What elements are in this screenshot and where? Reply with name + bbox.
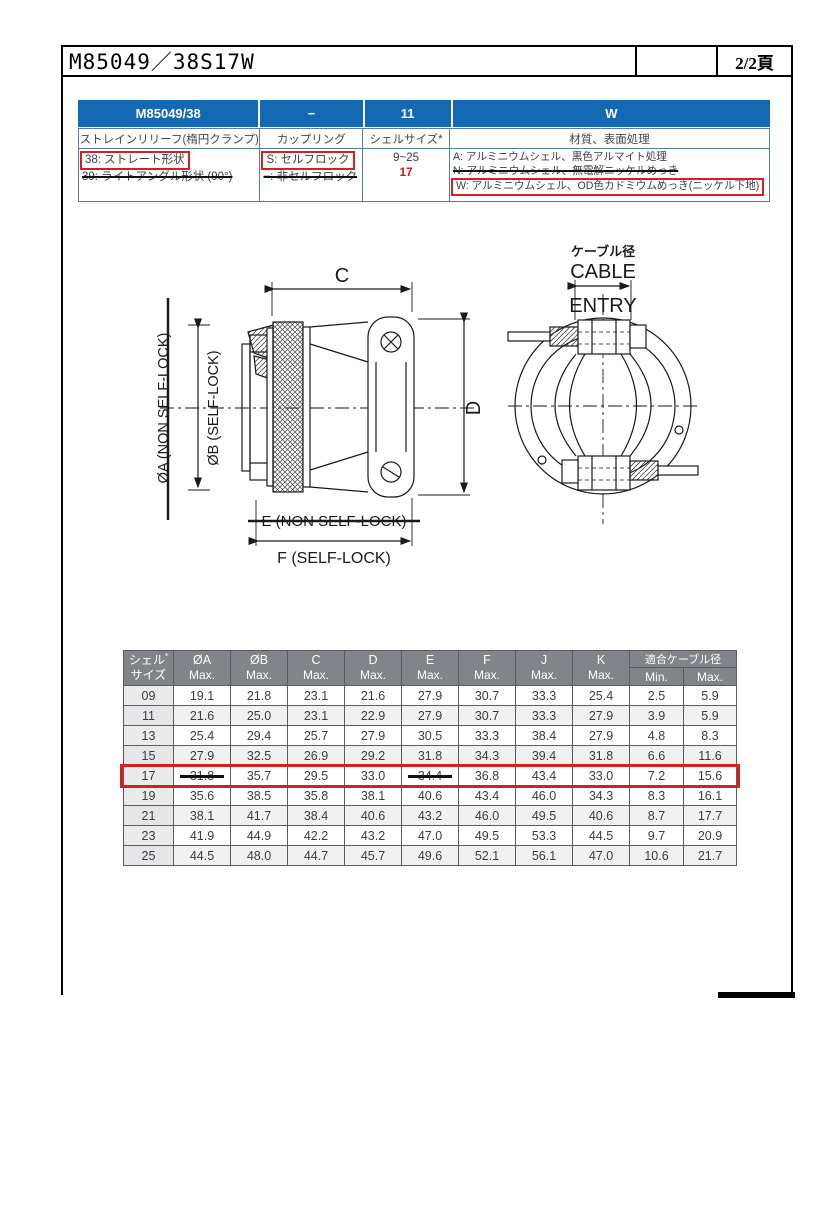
dim-value-cell: 31.8 xyxy=(573,746,630,766)
dim-value-cell: 22.9 xyxy=(345,706,402,726)
dim-value-cell: 30.7 xyxy=(459,706,516,726)
dim-value-cell: 25.0 xyxy=(231,706,288,726)
selector-option: N: アルミニウムシェル、無電解ニッケルめっき xyxy=(453,165,766,179)
dim-value-cell: 40.6 xyxy=(402,786,459,806)
selector-option-text: 9~25 xyxy=(393,151,419,166)
dim-value-cell: 27.9 xyxy=(573,706,630,726)
shell-size-value: 23 xyxy=(124,826,174,846)
selector-option: W: アルミニウムシェル、OD色カドミウムめっき(ニッケル下地) xyxy=(453,178,766,196)
selector-label-1: カップリング xyxy=(260,129,363,149)
selector-option: 39: ライトアングル形状 (90°) xyxy=(82,170,256,185)
dim-value-cell: 35.8 xyxy=(288,786,345,806)
dim-value-cell: 4.8 xyxy=(630,726,684,746)
dim-symbol: C xyxy=(311,653,320,668)
dim-symbol: ØA xyxy=(193,653,211,668)
dim-value-cell: 38.1 xyxy=(345,786,402,806)
table-row: 0919.121.823.121.627.930.733.325.42.55.9 xyxy=(124,686,737,706)
dim-value-cell: 15.6 xyxy=(684,766,737,786)
table-row: 2138.141.738.440.643.246.049.540.68.717.… xyxy=(124,806,737,826)
dim-value-cell: 40.6 xyxy=(345,806,402,826)
dim-value-cell: 21.6 xyxy=(174,706,231,726)
shell-size-value: 19 xyxy=(124,786,174,806)
dim-value-cell: 40.6 xyxy=(573,806,630,826)
shell-size-value: 21 xyxy=(124,806,174,826)
dim-value-cell: 38.5 xyxy=(231,786,288,806)
selector-header-row: M85049/38−11W xyxy=(78,100,770,127)
dim-table-header-row: シェル*サイズØAMax.ØBMax.CMax.DMax.EMax.FMax.J… xyxy=(124,651,737,686)
selector-option: 38: ストレート形状 xyxy=(82,151,256,170)
coupling-ring xyxy=(273,322,303,492)
selector-option-text: A: アルミニウムシェル、黒色アルマイト処理 xyxy=(453,151,667,165)
dim-value-cell: 26.9 xyxy=(288,746,345,766)
page-frame-bottom-mark xyxy=(718,992,795,998)
dim-value-cell: 33.3 xyxy=(459,726,516,746)
dim-value-cell: 20.9 xyxy=(684,826,737,846)
dim-value-cell: 49.6 xyxy=(402,846,459,866)
dim-value-cell: 29.4 xyxy=(231,726,288,746)
max-label: Max. xyxy=(531,668,557,683)
dimension-table: シェル*サイズØAMax.ØBMax.CMax.DMax.EMax.FMax.J… xyxy=(123,650,737,866)
dim-value-cell: 31.8 xyxy=(174,766,231,786)
dim-value-cell: 38.4 xyxy=(288,806,345,826)
dim-value-cell: 2.5 xyxy=(630,686,684,706)
dim-value-cell: 29.2 xyxy=(345,746,402,766)
selector-option-text: 39: ライトアングル形状 (90°) xyxy=(82,170,232,185)
dim-value-cell: 27.9 xyxy=(345,726,402,746)
dim-symbol: J xyxy=(541,653,547,668)
dim-value-cell: 48.0 xyxy=(231,846,288,866)
dim-value-cell: 35.6 xyxy=(174,786,231,806)
dim-label-c: C xyxy=(335,265,349,287)
technical-drawing: C D ØA (NON SELF-LOCK) ØB (SELF-LOCK) E … xyxy=(130,232,740,582)
top-screw-shaft xyxy=(550,327,578,346)
dim-value-cell: 39.4 xyxy=(516,746,573,766)
dim-value-cell: 8.3 xyxy=(684,726,737,746)
dim-value-cell: 34.4 xyxy=(402,766,459,786)
dim-value-cell: 34.3 xyxy=(573,786,630,806)
dim-value-cell: 6.6 xyxy=(630,746,684,766)
dim-value-cell: 5.9 xyxy=(684,706,737,726)
shell-size-line2: サイズ xyxy=(131,668,167,683)
max-label: Max. xyxy=(303,668,329,683)
max-label: Max. xyxy=(360,668,386,683)
dia-b-label: ØB (SELF-LOCK) xyxy=(206,350,222,465)
dim-value-cell: 49.5 xyxy=(516,806,573,826)
dim-value-cell: 41.7 xyxy=(231,806,288,826)
page-frame-right xyxy=(791,75,793,995)
dim-table-header-d: DMax. xyxy=(345,651,402,686)
cable-dia-jp-label: ケーブル径 xyxy=(571,244,635,259)
dim-value-cell: 33.0 xyxy=(345,766,402,786)
dim-label-d: D xyxy=(463,401,485,415)
top-screw-head xyxy=(630,325,646,348)
max-label: Max. xyxy=(474,668,500,683)
title-bar: M85049／38S17W 2/2頁 xyxy=(61,45,793,77)
dim-value-cell: 25.4 xyxy=(174,726,231,746)
selector-code-3: W xyxy=(453,100,770,127)
cable-entry-label-line1: CABLE xyxy=(570,261,636,283)
dim-symbol: E xyxy=(426,653,434,668)
dimension-table-grid: シェル*サイズØAMax.ØBMax.CMax.DMax.EMax.FMax.J… xyxy=(123,650,737,866)
dim-value-cell: 23.1 xyxy=(288,706,345,726)
struck-value: 34.4 xyxy=(417,769,443,783)
dim-value-cell: 21.6 xyxy=(345,686,402,706)
part-number-title: M85049／38S17W xyxy=(69,46,255,76)
dim-value-cell: 33.0 xyxy=(573,766,630,786)
selector-option: 17 xyxy=(366,166,446,181)
dim-value-cell: 27.9 xyxy=(573,726,630,746)
shell-size-line1: シェル* xyxy=(129,653,168,668)
dim-label-f: F (SELF-LOCK) xyxy=(277,550,391,567)
dim-value-cell: 29.5 xyxy=(288,766,345,786)
shell-size-value: 11 xyxy=(124,706,174,726)
shell-size-value: 25 xyxy=(124,846,174,866)
bottom-screw-head xyxy=(562,460,578,483)
dim-value-cell: 27.9 xyxy=(402,706,459,726)
table-row: 1121.625.023.122.927.930.733.327.93.95.9 xyxy=(124,706,737,726)
selector-code-1: − xyxy=(260,100,364,127)
dim-value-cell: 27.9 xyxy=(402,686,459,706)
table-row: 1731.835.729.533.034.436.843.433.07.215.… xyxy=(124,766,737,786)
dia-a-label: ØA (NON SELF-LOCK) xyxy=(156,333,172,484)
dim-table-header-øb: ØBMax. xyxy=(231,651,288,686)
dim-value-cell: 44.5 xyxy=(174,846,231,866)
dim-value-cell: 3.9 xyxy=(630,706,684,726)
max-label: Max. xyxy=(588,668,614,683)
max-label: Max. xyxy=(189,668,215,683)
dim-value-cell: 47.0 xyxy=(573,846,630,866)
dim-value-cell: 5.9 xyxy=(684,686,737,706)
selector-option: −: 非セルフロック xyxy=(263,170,359,185)
dim-value-cell: 43.2 xyxy=(402,806,459,826)
dim-value-cell: 43.4 xyxy=(459,786,516,806)
dim-table-header-j: JMax. xyxy=(516,651,573,686)
page-number-cell: 2/2頁 xyxy=(716,47,791,75)
selector-options-0: 38: ストレート形状39: ライトアングル形状 (90°) xyxy=(79,149,260,201)
selector-option-text: 17 xyxy=(400,166,413,181)
clamp-saddle xyxy=(368,317,414,497)
dim-symbol: F xyxy=(483,653,491,668)
dim-value-cell: 11.6 xyxy=(684,746,737,766)
dim-table-header-øa: ØAMax. xyxy=(174,651,231,686)
dim-table-header-e: EMax. xyxy=(402,651,459,686)
dim-table-header-cable-group: 適合ケーブル径Min.Max. xyxy=(630,651,737,686)
dim-table-header-shell-size: シェル*サイズ xyxy=(124,651,174,686)
dim-value-cell: 30.5 xyxy=(402,726,459,746)
flange-hole xyxy=(675,426,683,434)
dim-value-cell: 34.3 xyxy=(459,746,516,766)
part-number-breakdown-table: M85049/38−11W ストレインリリーフ(楕円クランプ)カップリングシェル… xyxy=(78,100,770,202)
dim-value-cell: 19.1 xyxy=(174,686,231,706)
dim-value-cell: 38.1 xyxy=(174,806,231,826)
shell-size-value: 15 xyxy=(124,746,174,766)
max-label: Max. xyxy=(246,668,272,683)
dim-value-cell: 8.3 xyxy=(630,786,684,806)
dim-value-cell: 23.1 xyxy=(288,686,345,706)
page-number: 2/2頁 xyxy=(735,49,774,74)
selector-options-2: 9~2517 xyxy=(363,149,450,201)
selector-option: A: アルミニウムシェル、黒色アルマイト処理 xyxy=(453,151,766,165)
dim-value-cell: 46.0 xyxy=(516,786,573,806)
dim-value-cell: 49.5 xyxy=(459,826,516,846)
dim-value-cell: 43.4 xyxy=(516,766,573,786)
selector-option-text: S: セルフロック xyxy=(261,151,354,170)
cable-group-title: 適合ケーブル径 xyxy=(630,651,737,668)
dim-value-cell: 31.8 xyxy=(402,746,459,766)
flange-hole xyxy=(538,456,546,464)
dim-value-cell: 44.9 xyxy=(231,826,288,846)
selector-options-1: S: セルフロック−: 非セルフロック xyxy=(260,149,363,201)
selector-label-2: シェルサイズ* xyxy=(363,129,450,149)
selector-option-text: W: アルミニウムシェル、OD色カドミウムめっき(ニッケル下地) xyxy=(451,178,764,196)
dim-value-cell: 7.2 xyxy=(630,766,684,786)
selector-label-row: ストレインリリーフ(楕円クランプ)カップリングシェルサイズ*材質、表面処理 xyxy=(79,129,769,149)
bottom-screw-shaft xyxy=(630,461,658,480)
shell-size-value: 09 xyxy=(124,686,174,706)
dim-value-cell: 27.9 xyxy=(174,746,231,766)
table-row: 1935.638.535.838.140.643.446.034.38.316.… xyxy=(124,786,737,806)
selector-option: S: セルフロック xyxy=(263,151,359,170)
selector-label-3: 材質、表面処理 xyxy=(450,129,769,149)
dim-value-cell: 53.3 xyxy=(516,826,573,846)
dim-value-cell: 33.3 xyxy=(516,686,573,706)
cable-max-header: Max. xyxy=(684,668,737,686)
dim-value-cell: 8.7 xyxy=(630,806,684,826)
table-row: 1325.429.425.727.930.533.338.427.94.88.3 xyxy=(124,726,737,746)
dim-value-cell: 47.0 xyxy=(402,826,459,846)
selector-option-text: 38: ストレート形状 xyxy=(80,151,190,170)
dim-value-cell: 41.9 xyxy=(174,826,231,846)
dim-value-cell: 21.7 xyxy=(684,846,737,866)
cable-group-subheader: Min.Max. xyxy=(630,668,737,686)
top-screw-tip xyxy=(508,332,550,341)
dim-value-cell: 45.7 xyxy=(345,846,402,866)
dim-value-cell: 46.0 xyxy=(459,806,516,826)
dim-value-cell: 30.7 xyxy=(459,686,516,706)
top-clamp-bar xyxy=(578,320,630,354)
dim-table-header-c: CMax. xyxy=(288,651,345,686)
dim-value-cell: 38.4 xyxy=(516,726,573,746)
shell-size-value: 17 xyxy=(124,766,174,786)
dim-value-cell: 25.4 xyxy=(573,686,630,706)
dim-table-header-f: FMax. xyxy=(459,651,516,686)
page-frame-left xyxy=(61,75,63,995)
dim-value-cell: 9.7 xyxy=(630,826,684,846)
max-label: Max. xyxy=(417,668,443,683)
selector-option-text: −: 非セルフロック xyxy=(263,170,357,185)
dim-symbol: ØB xyxy=(250,653,268,668)
plug-stub xyxy=(242,344,250,471)
dim-value-cell: 21.8 xyxy=(231,686,288,706)
dim-value-cell: 44.7 xyxy=(288,846,345,866)
dim-value-cell: 33.3 xyxy=(516,706,573,726)
selector-body: ストレインリリーフ(楕円クランプ)カップリングシェルサイズ*材質、表面処理 38… xyxy=(78,128,770,202)
struck-value: 31.8 xyxy=(189,769,215,783)
dim-value-cell: 10.6 xyxy=(630,846,684,866)
datasheet-page: M85049／38S17W 2/2頁 M85049/38−11W ストレインリリ… xyxy=(0,0,827,1205)
dim-value-cell: 43.2 xyxy=(345,826,402,846)
dim-value-cell: 17.7 xyxy=(684,806,737,826)
selector-option-text: N: アルミニウムシェル、無電解ニッケルめっき xyxy=(453,165,678,179)
dim-symbol: D xyxy=(368,653,377,668)
dim-value-cell: 56.1 xyxy=(516,846,573,866)
dim-value-cell: 36.8 xyxy=(459,766,516,786)
dim-value-cell: 32.5 xyxy=(231,746,288,766)
dim-value-cell: 42.2 xyxy=(288,826,345,846)
shell-size-value: 13 xyxy=(124,726,174,746)
selector-options-row: 38: ストレート形状39: ライトアングル形状 (90°)S: セルフロック−… xyxy=(79,149,769,201)
dim-value-cell: 16.1 xyxy=(684,786,737,806)
dim-label-e: E (NON SELF-LOCK) xyxy=(261,513,406,530)
cable-min-header: Min. xyxy=(630,668,684,686)
dim-value-cell: 25.7 xyxy=(288,726,345,746)
title-blank-cell xyxy=(635,47,716,75)
dim-value-cell: 44.5 xyxy=(573,826,630,846)
dim-symbol: K xyxy=(597,653,605,668)
dim-table-header-k: KMax. xyxy=(573,651,630,686)
selector-code-2: 11 xyxy=(365,100,453,127)
cable-entry-label-line2: ENTRY xyxy=(569,295,636,317)
table-row: 1527.932.526.929.231.834.339.431.86.611.… xyxy=(124,746,737,766)
selector-label-0: ストレインリリーフ(楕円クランプ) xyxy=(79,129,260,149)
selector-option: 9~25 xyxy=(366,151,446,166)
selector-code-0: M85049/38 xyxy=(78,100,260,127)
selector-options-3: A: アルミニウムシェル、黒色アルマイト処理N: アルミニウムシェル、無電解ニッ… xyxy=(450,149,769,201)
cable-opening-arc xyxy=(555,354,576,456)
dim-value-cell: 35.7 xyxy=(231,766,288,786)
bottom-clamp-bar xyxy=(578,456,630,490)
dim-value-cell: 52.1 xyxy=(459,846,516,866)
title-cell: M85049／38S17W xyxy=(63,47,635,75)
bottom-screw-tip xyxy=(658,466,698,475)
table-row: 2544.548.044.745.749.652.156.147.010.621… xyxy=(124,846,737,866)
table-row: 2341.944.942.243.247.049.553.344.59.720.… xyxy=(124,826,737,846)
